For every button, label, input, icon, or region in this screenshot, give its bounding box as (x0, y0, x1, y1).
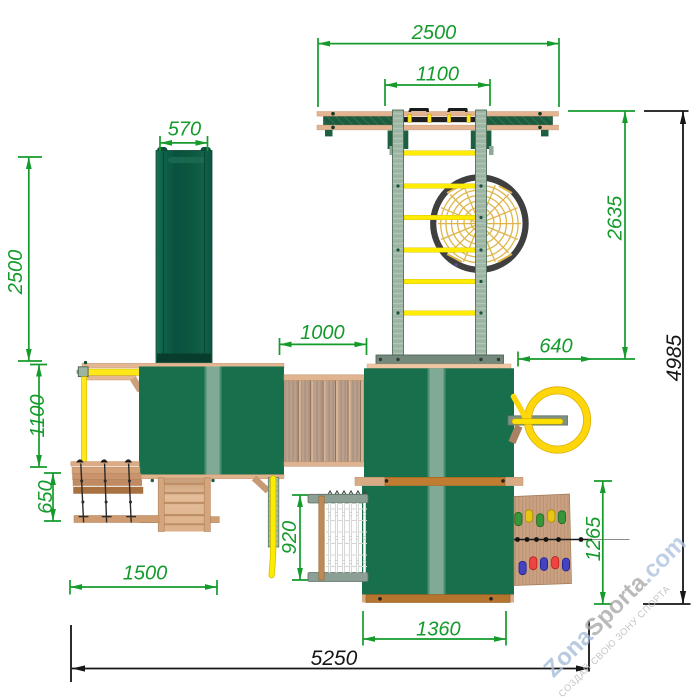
svg-text:1265: 1265 (583, 516, 605, 561)
svg-text:640: 640 (539, 336, 572, 358)
svg-text:2500: 2500 (411, 22, 457, 44)
svg-text:570: 570 (168, 119, 201, 141)
svg-text:1100: 1100 (416, 64, 459, 86)
svg-text:920: 920 (279, 521, 301, 554)
svg-text:650: 650 (35, 480, 57, 513)
svg-text:1100: 1100 (27, 394, 49, 437)
svg-text:4985: 4985 (663, 334, 686, 381)
svg-text:2500: 2500 (5, 250, 27, 296)
svg-text:2635: 2635 (605, 195, 627, 241)
svg-text:1500: 1500 (123, 563, 168, 585)
svg-text:1360: 1360 (416, 619, 461, 641)
svg-text:1000: 1000 (300, 322, 345, 344)
svg-text:5250: 5250 (311, 647, 358, 670)
